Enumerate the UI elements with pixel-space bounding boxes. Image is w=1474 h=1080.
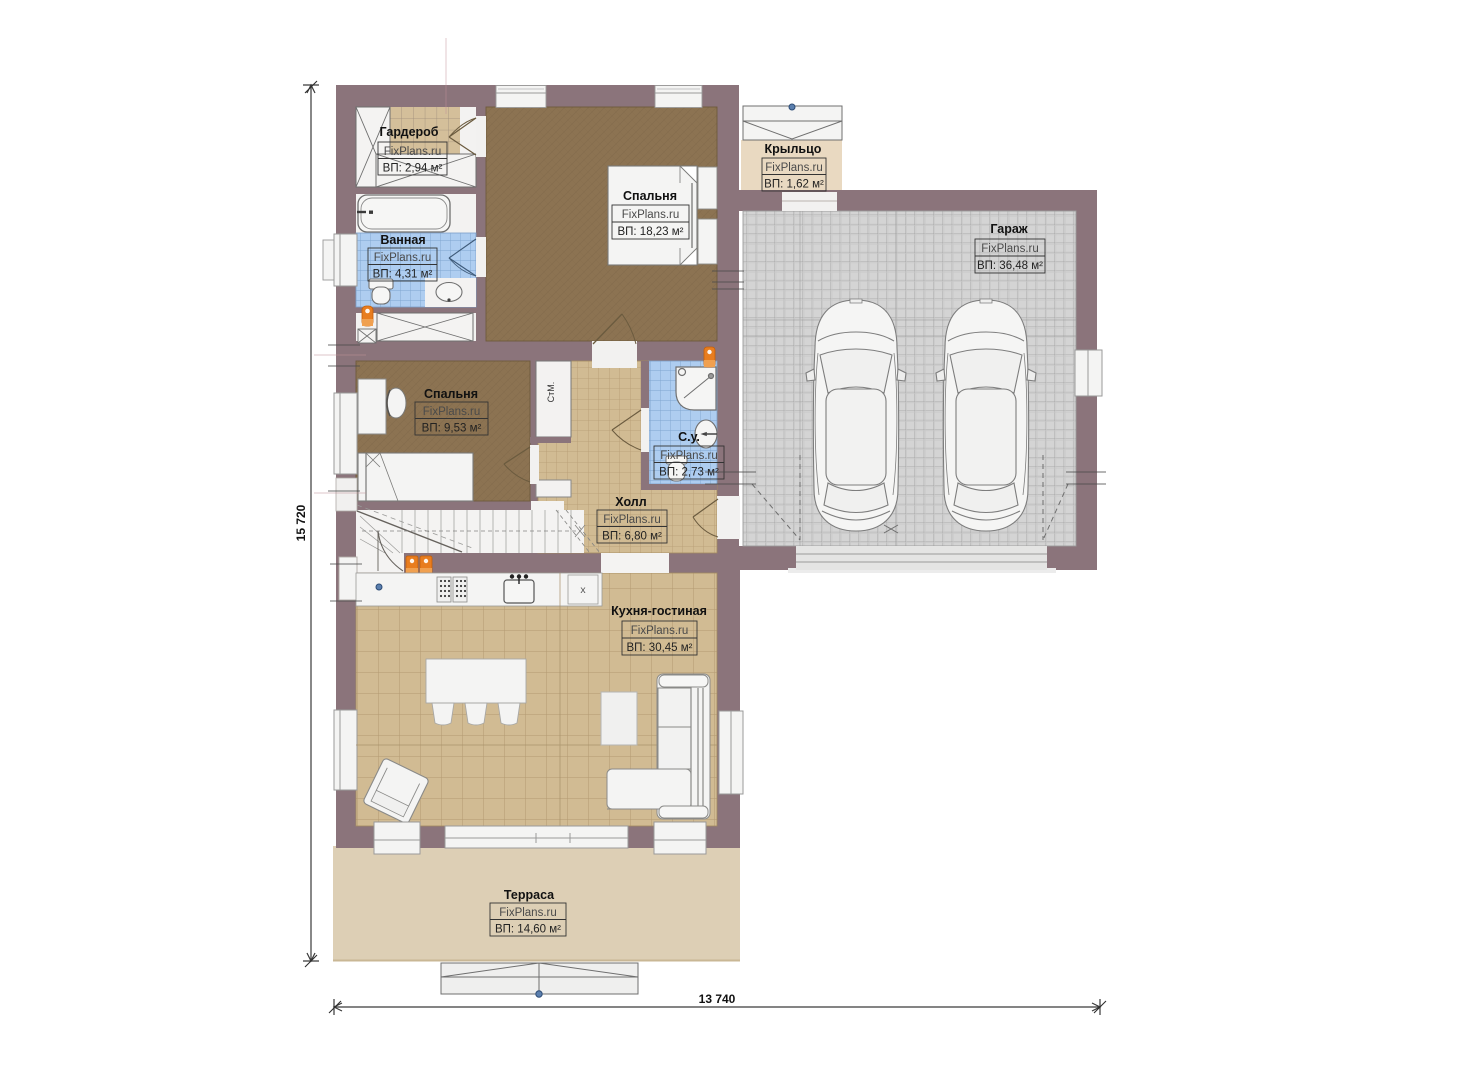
- svg-text:FixPlans.ru: FixPlans.ru: [384, 146, 442, 158]
- svg-text:FixPlans.ru: FixPlans.ru: [981, 243, 1039, 255]
- svg-text:ВП: 4,31 м²: ВП: 4,31 м²: [373, 269, 433, 281]
- svg-text:FixPlans.ru: FixPlans.ru: [423, 406, 481, 418]
- svg-text:ВП: 18,23 м²: ВП: 18,23 м²: [617, 226, 683, 238]
- svg-text:Крыльцо: Крыльцо: [765, 142, 822, 156]
- svg-text:FixPlans.ru: FixPlans.ru: [499, 907, 557, 919]
- svg-text:ВП: 1,62 м²: ВП: 1,62 м²: [764, 179, 824, 191]
- svg-text:x: x: [580, 584, 586, 596]
- svg-text:СтМ.: СтМ.: [546, 382, 556, 403]
- svg-text:Спальня: Спальня: [424, 387, 478, 401]
- svg-text:FixPlans.ru: FixPlans.ru: [765, 162, 823, 174]
- svg-text:FixPlans.ru: FixPlans.ru: [660, 450, 718, 462]
- svg-text:ВП: 30,45 м²: ВП: 30,45 м²: [626, 642, 692, 654]
- svg-text:Спальня: Спальня: [623, 189, 677, 203]
- svg-text:13 740: 13 740: [699, 992, 736, 1006]
- svg-text:FixPlans.ru: FixPlans.ru: [374, 252, 432, 264]
- svg-text:ВП: 14,60 м²: ВП: 14,60 м²: [495, 924, 561, 936]
- svg-text:Холл: Холл: [615, 495, 646, 509]
- svg-text:FixPlans.ru: FixPlans.ru: [631, 625, 689, 637]
- svg-text:Кухня-гостиная: Кухня-гостиная: [611, 604, 707, 618]
- svg-text:FixPlans.ru: FixPlans.ru: [622, 209, 680, 221]
- svg-text:Терраса: Терраса: [504, 888, 555, 902]
- svg-text:FixPlans.ru: FixPlans.ru: [603, 514, 661, 526]
- svg-text:ВП: 2,94 м²: ВП: 2,94 м²: [383, 163, 443, 175]
- svg-text:Гардероб: Гардероб: [379, 125, 438, 139]
- svg-text:Гараж: Гараж: [990, 222, 1027, 236]
- svg-text:ВП: 9,53 м²: ВП: 9,53 м²: [422, 423, 482, 435]
- svg-text:ВП: 36,48 м²: ВП: 36,48 м²: [977, 260, 1043, 272]
- svg-text:ВП: 6,80 м²: ВП: 6,80 м²: [602, 531, 662, 543]
- svg-text:Ванная: Ванная: [380, 233, 425, 247]
- svg-text:С.у.: С.у.: [678, 430, 700, 444]
- svg-text:15 720: 15 720: [294, 504, 308, 541]
- svg-text:ВП: 2,73 м²: ВП: 2,73 м²: [659, 467, 719, 479]
